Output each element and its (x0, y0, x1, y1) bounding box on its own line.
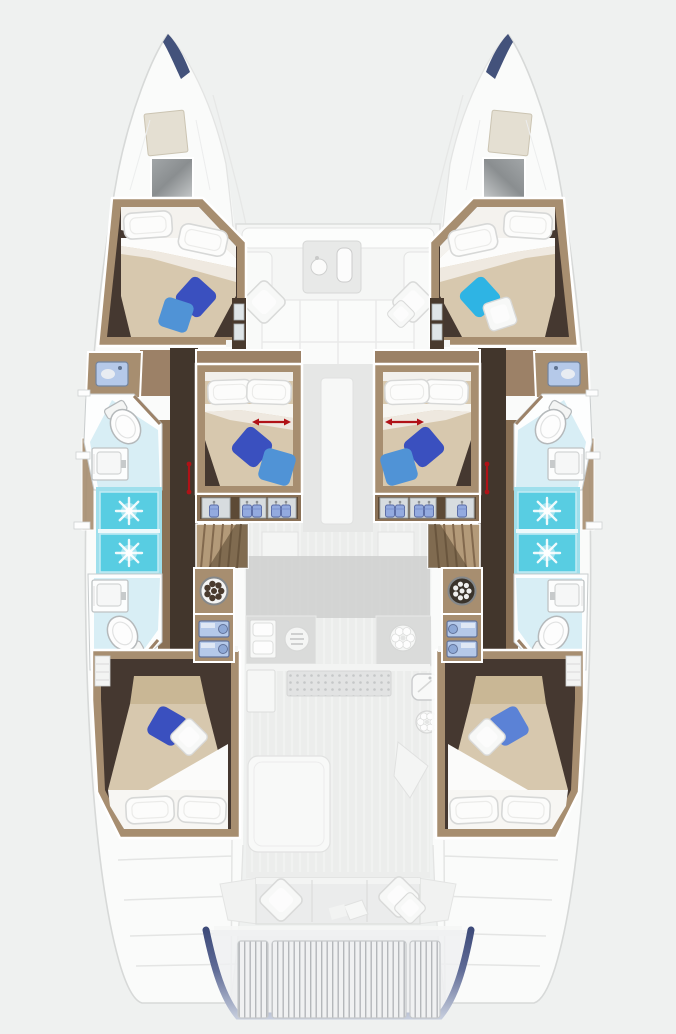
starboard-washing-machine-icon (449, 578, 476, 605)
table-dot-icon (315, 256, 319, 260)
stair-landing (262, 532, 298, 558)
aft-cockpit-bench (214, 875, 462, 936)
swim-platform-slats (238, 941, 268, 1018)
stair-landing (378, 532, 414, 558)
galley-sink-icon (250, 620, 276, 658)
swim-platform-slats (410, 941, 440, 1018)
floorplan-page (0, 0, 676, 1034)
galley-burner-icon (390, 625, 416, 651)
console-bar (321, 378, 353, 524)
catamaran-floorplan (0, 0, 676, 1034)
galley-dark-band (246, 556, 430, 618)
transom-swim-platform (206, 930, 471, 1018)
cockpit-table (248, 756, 330, 852)
table-tray-icon (337, 248, 352, 282)
cockpit-grill-vent (287, 671, 391, 696)
table-cup-icon (311, 259, 327, 275)
swim-platform-slats (272, 941, 406, 1018)
galley-grill-icon (285, 627, 309, 651)
cockpit-fridge (247, 670, 275, 712)
